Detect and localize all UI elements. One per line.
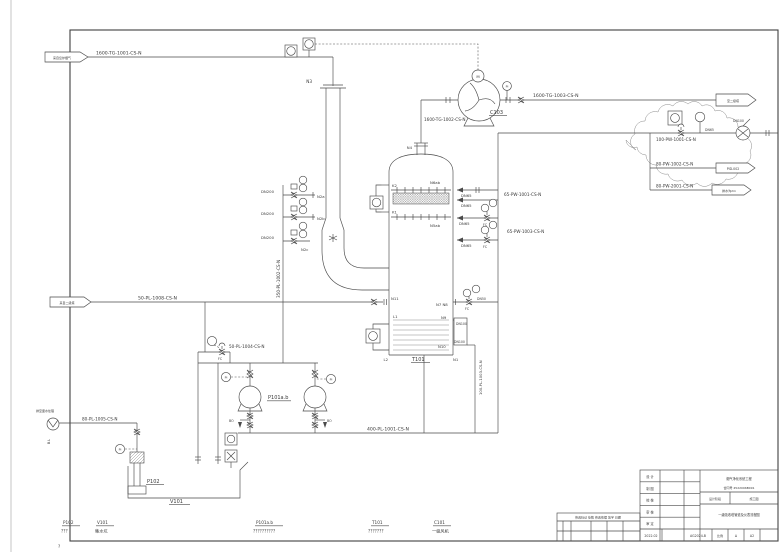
nozzle-label-n1: N1 bbox=[453, 357, 459, 362]
pipe-label-tg1001: 1600-TG-1001-CS-N bbox=[96, 51, 142, 57]
scale-label: 比例 bbox=[717, 533, 723, 538]
title-block: 修改标记 处数 修改依据 签字 日期 设 计 制 图 校 核 审 核 审 定 烟… bbox=[557, 470, 778, 541]
legend-desc: ??? bbox=[61, 529, 68, 534]
equipment-label-t101: T101 bbox=[411, 357, 425, 363]
instrument-bubble bbox=[299, 184, 307, 192]
level-instrument bbox=[366, 329, 380, 343]
bottoms-line: 400-PL-1001-CS-N 100-PL-1003-CS-N bbox=[238, 345, 498, 433]
level-control-branch: FC 50-PL-1004-CS-N bbox=[198, 302, 265, 363]
size-label-dn65: DN65 bbox=[461, 243, 472, 248]
pipe-label-pw80-1002: 80-PW-1002-CS-N bbox=[656, 162, 693, 167]
nozzle-label-n2b: N2b bbox=[317, 216, 325, 221]
fc-code: FC bbox=[483, 245, 488, 249]
p102-pump-bowl bbox=[128, 486, 146, 494]
sign-row-label: 审 核 bbox=[646, 509, 654, 514]
equipment-label-c103: C103 bbox=[490, 110, 503, 116]
battery-limit-cloud: 100-PW-1001-CS-N DN65 DN100 80-PW-1002-C… bbox=[498, 101, 778, 195]
nozzle-label-n4: N4 bbox=[407, 145, 413, 150]
quench-spray-nozzle-icon bbox=[329, 234, 337, 242]
pi-label: PI bbox=[225, 376, 228, 380]
flue-inlet-connector-label: 来自窑炉烟气 bbox=[53, 55, 71, 60]
from-stage2-connector-label: 来自二级塔 bbox=[59, 300, 74, 305]
legend-desc: ??????? bbox=[368, 529, 384, 534]
fc-code: FC bbox=[465, 307, 470, 311]
equipment-label-v101: V101 bbox=[170, 499, 183, 505]
sheet-size: A2 bbox=[750, 534, 754, 538]
nozzle-label-n9: N9 bbox=[441, 315, 447, 320]
size-label-dn50: DN50 bbox=[477, 297, 486, 301]
legend-tag: P102 bbox=[63, 520, 74, 525]
level-instrument bbox=[225, 433, 237, 445]
legend-desc: ?????????? bbox=[253, 529, 275, 534]
instrument-bubble bbox=[472, 285, 480, 293]
size-label-dn65: DN65 bbox=[459, 221, 470, 226]
instrument-bubble bbox=[299, 198, 307, 206]
valve-icon bbox=[291, 192, 297, 198]
pi-label: PI bbox=[119, 448, 122, 452]
pid-drawing: 来自窑炉烟气 1600-TG-1001-CS-N N3 350-PL-1002-… bbox=[0, 0, 784, 552]
nozzle-label-n5ab: N5ab bbox=[430, 223, 441, 228]
pi-label: PI bbox=[506, 85, 509, 89]
size-label-dn100: DN100 bbox=[456, 322, 467, 326]
pipe-label-tg1003: 1600-TG-1003-CS-N bbox=[533, 93, 579, 99]
equipment-label-p102: P102 bbox=[147, 479, 160, 485]
pipe-label-pl50-1004: 50-PL-1004-CS-N bbox=[229, 344, 265, 349]
drawing-frame bbox=[11, 0, 778, 552]
size-label-dn65: DN65 bbox=[461, 203, 472, 208]
project-name: 烟气净化系统工程 bbox=[726, 476, 752, 481]
legend-tag: T101 bbox=[371, 520, 383, 525]
to-stage2-connector-label: 至二级塔 bbox=[727, 98, 739, 103]
pipe-label-pl100-1003: 100-PL-1003-CS-N bbox=[478, 360, 483, 395]
control-valve-icon bbox=[466, 299, 472, 305]
sign-row-label: 校 核 bbox=[646, 498, 654, 503]
contract-line: 合同号 4522096B091 bbox=[723, 485, 754, 490]
pipe-label-pw100-1001: 100-PW-1001-CS-N bbox=[656, 137, 696, 142]
nozzle-label-n11: N11 bbox=[391, 296, 399, 301]
nozzle-label-n7n8: N7 N8 bbox=[436, 302, 448, 307]
spray-riser: DN65 DN65 65-PW-1001-CS-N FC DN65 FC DN6… bbox=[453, 133, 544, 433]
legend-tag: C101 bbox=[434, 520, 445, 525]
bo-code: BO bbox=[229, 419, 234, 423]
packing-bed bbox=[393, 193, 449, 204]
size-label-dn100: DN100 bbox=[454, 340, 465, 344]
nozzle-label-n3: N3 bbox=[306, 79, 312, 84]
equipment-legend: P102 ??? V101 集水坑 P101a.b ?????????? T10… bbox=[58, 520, 451, 549]
stage-label: 设计阶段 bbox=[709, 496, 721, 501]
pump-icon bbox=[304, 386, 326, 408]
title-date: 2022.02 bbox=[644, 534, 657, 538]
level-controller-bubble bbox=[207, 336, 216, 345]
size-label-dn200: DN200 bbox=[261, 211, 275, 216]
pumps-p101ab: P101a.b PI PI BO BO bbox=[198, 363, 336, 433]
instrument-bubble bbox=[299, 222, 307, 230]
pipe-label-pl80-1005: 80-PL-1005-CS-N bbox=[82, 417, 118, 422]
equipment-label-p101ab: P101a.b bbox=[268, 395, 288, 401]
fc-code: FC bbox=[218, 357, 223, 361]
stage-value: 施工图 bbox=[749, 496, 758, 501]
drain-funnel-icon bbox=[47, 418, 59, 430]
pipe-label-pl350-1002: 350-PL-1002-CS-N bbox=[276, 260, 281, 298]
nozzle-label-l2: L2 bbox=[383, 357, 388, 362]
valve-icon bbox=[291, 214, 297, 220]
drawing-title: 一级吸收塔管道及仪表流程图 bbox=[718, 512, 759, 517]
shared-instrument bbox=[668, 111, 682, 125]
nozzle-label-n10: N10 bbox=[438, 344, 446, 349]
valve-icon bbox=[291, 238, 297, 244]
pipe-label-pw80-2001: 80-PW-2001-CS-N bbox=[656, 184, 693, 189]
legend-tag: P101a.b bbox=[256, 520, 273, 525]
instrument-bubble bbox=[481, 204, 489, 212]
sign-row-label: 制 图 bbox=[646, 486, 653, 491]
stage2-return-line: 来自二级塔 50-PL-1008-CS-N N11 bbox=[50, 296, 399, 308]
tank-and-p102: 排至废水处理 B.L 80-PL-1005-CS-N PI P102 V101 bbox=[36, 352, 248, 505]
legend-note: ? bbox=[58, 544, 60, 549]
pipe-label-tg1002: 1600-TG-1002-CS-N bbox=[424, 117, 466, 122]
pi-label: PI bbox=[330, 378, 333, 382]
control-valve-icon bbox=[484, 237, 490, 243]
column-t101: N4 1600-TG-1002-CS-N K2 K1 N6ab N5ab L1 … bbox=[366, 100, 467, 363]
bl-label: B.L bbox=[47, 439, 51, 444]
size-label-dn200: DN200 bbox=[261, 189, 275, 194]
legend-desc: 一级风机 bbox=[432, 528, 450, 535]
pipe-label-pl400-1001: 400-PL-1001-CS-N bbox=[367, 427, 409, 433]
legend-tag: V101 bbox=[97, 520, 108, 525]
motor-label: M bbox=[476, 74, 479, 79]
revision-cloud-icon bbox=[626, 101, 752, 186]
pump-icon bbox=[239, 386, 261, 408]
size-label-dn100: DN100 bbox=[733, 119, 744, 123]
pipe-label-pw65-1001: 65-PW-1001-CS-N bbox=[504, 192, 541, 197]
instrument-bubble bbox=[299, 206, 307, 214]
rev-mark: Δ bbox=[735, 534, 738, 538]
valve-icon bbox=[371, 299, 377, 305]
nozzle-label-n2a: N2a bbox=[317, 194, 325, 199]
nozzle-label-n6ab: N6ab bbox=[430, 180, 441, 185]
drawing-number: AG2024-B bbox=[690, 534, 706, 538]
fan-c103: M 1600-TG-1003-CS-N 至二级塔 PI C103 bbox=[421, 70, 756, 126]
instrument-bubble bbox=[695, 112, 705, 122]
inlet-duct: N3 bbox=[306, 79, 389, 290]
control-valve-icon bbox=[484, 215, 490, 221]
drain-arrow-icon bbox=[238, 422, 242, 428]
quench-spray-branches: 350-PL-1002-CS-N DN200 N2a DN200 N2b DN2… bbox=[261, 176, 325, 363]
instrument-bubble bbox=[481, 226, 489, 234]
revision-table-header: 修改标记 处数 修改依据 签字 日期 bbox=[575, 515, 621, 520]
instrument-bubble bbox=[299, 176, 307, 184]
nozzle-label-l1: L1 bbox=[393, 314, 398, 319]
nozzle-label-k2: K2 bbox=[392, 183, 397, 188]
nozzle-label-n2c: N2c bbox=[301, 247, 308, 252]
pipe-label-pw65-1003: 65-PW-1003-CS-N bbox=[507, 229, 544, 234]
damper-icon bbox=[518, 97, 524, 103]
pid-002-connector-label: PID-002 bbox=[727, 167, 740, 171]
sign-row-label: 设 计 bbox=[646, 474, 654, 479]
drain-ditch-connector-label: 排水沟2m bbox=[722, 188, 736, 193]
p102-motor bbox=[130, 452, 144, 463]
nozzle-label-k1: K1 bbox=[392, 210, 397, 215]
flue-gas-analyzers bbox=[285, 38, 478, 70]
bo-code: BO bbox=[327, 419, 332, 423]
instrument-bubble bbox=[489, 221, 497, 229]
instrument-bubble bbox=[299, 230, 307, 238]
control-valve-icon bbox=[678, 130, 684, 136]
size-label-dn200: DN200 bbox=[261, 235, 275, 240]
pid-drawing-canvas: 来自窑炉烟气 1600-TG-1001-CS-N N3 350-PL-1002-… bbox=[0, 0, 784, 552]
instrument-bubble bbox=[463, 289, 471, 297]
pipe-label-pl50-1008: 50-PL-1008-CS-N bbox=[138, 296, 177, 302]
legend-desc: 集水坑 bbox=[95, 528, 108, 535]
to-waste-note: 排至废水处理 bbox=[36, 408, 54, 413]
sign-row-label: 审 定 bbox=[646, 521, 654, 526]
size-label-dn65: DN65 bbox=[705, 128, 714, 132]
control-valve-icon bbox=[219, 349, 225, 355]
instrument-bubble bbox=[489, 199, 497, 207]
size-label-dn65: DN65 bbox=[461, 193, 472, 198]
